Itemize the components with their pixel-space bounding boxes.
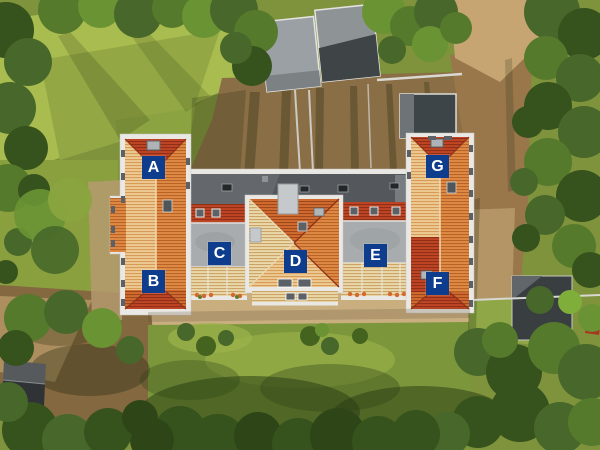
aerial-photo: A B C D E F G <box>0 0 600 450</box>
unit-marker-b[interactable]: B <box>142 270 165 293</box>
unit-marker-d[interactable]: D <box>284 250 307 273</box>
aerial-photo-scene <box>0 0 600 450</box>
front-awning-right <box>341 263 415 300</box>
unit-marker-e[interactable]: E <box>364 244 387 267</box>
unit-marker-c[interactable]: C <box>208 242 231 265</box>
front-awning-left <box>189 267 247 300</box>
unit-marker-g[interactable]: G <box>426 155 449 178</box>
unit-marker-f[interactable]: F <box>426 272 449 295</box>
unit-marker-a[interactable]: A <box>142 156 165 179</box>
chimney <box>278 184 298 214</box>
central-pavilion-roof <box>245 184 343 306</box>
